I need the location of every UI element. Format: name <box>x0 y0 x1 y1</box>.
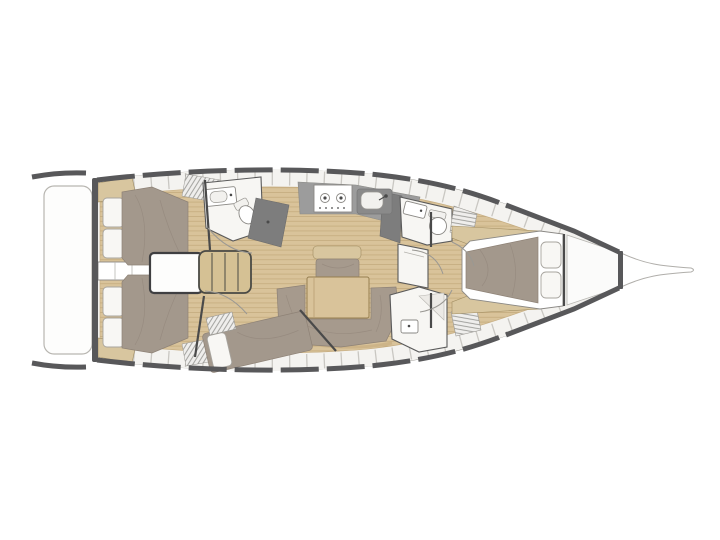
anchor-locker <box>567 235 621 305</box>
engine-box <box>150 253 202 293</box>
forward-cabin <box>452 226 563 314</box>
forward-settee <box>316 259 359 279</box>
stern-quarter-cap-bottom <box>32 363 86 367</box>
settee-backrest <box>313 246 361 259</box>
saloon-table <box>307 277 369 318</box>
bow-bar <box>618 251 623 289</box>
pillow <box>103 198 124 227</box>
galley-sink <box>357 189 392 214</box>
nav-station <box>398 244 428 288</box>
nav-desk <box>398 244 428 288</box>
pillow <box>103 318 124 347</box>
yacht-floor-plan-canvas <box>0 0 720 540</box>
transom-wall <box>92 178 98 362</box>
stove <box>314 185 352 212</box>
stern-quarter-cap-top <box>32 173 86 177</box>
pillow <box>103 229 124 258</box>
companionway <box>150 251 251 293</box>
swim-platform <box>44 186 92 354</box>
bowsprit <box>621 253 694 287</box>
sink <box>205 186 237 206</box>
pillow <box>541 272 561 298</box>
yacht-floor-plan <box>0 0 720 540</box>
pillow <box>541 242 561 268</box>
pillow <box>103 287 124 316</box>
